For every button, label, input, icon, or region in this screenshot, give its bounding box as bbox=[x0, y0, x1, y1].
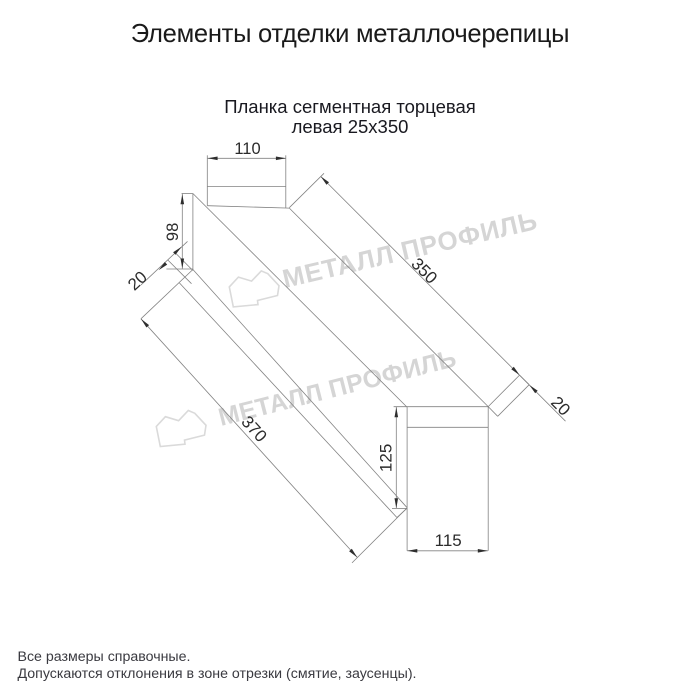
svg-text:20: 20 bbox=[547, 393, 574, 420]
svg-text:МЕТАЛЛ ПРОФИЛЬ: МЕТАЛЛ ПРОФИЛЬ bbox=[280, 205, 541, 294]
svg-text:20: 20 bbox=[124, 267, 151, 294]
svg-text:98: 98 bbox=[164, 223, 182, 241]
svg-text:125: 125 bbox=[377, 444, 396, 472]
svg-text:110: 110 bbox=[234, 140, 260, 158]
svg-text:115: 115 bbox=[435, 531, 462, 550]
